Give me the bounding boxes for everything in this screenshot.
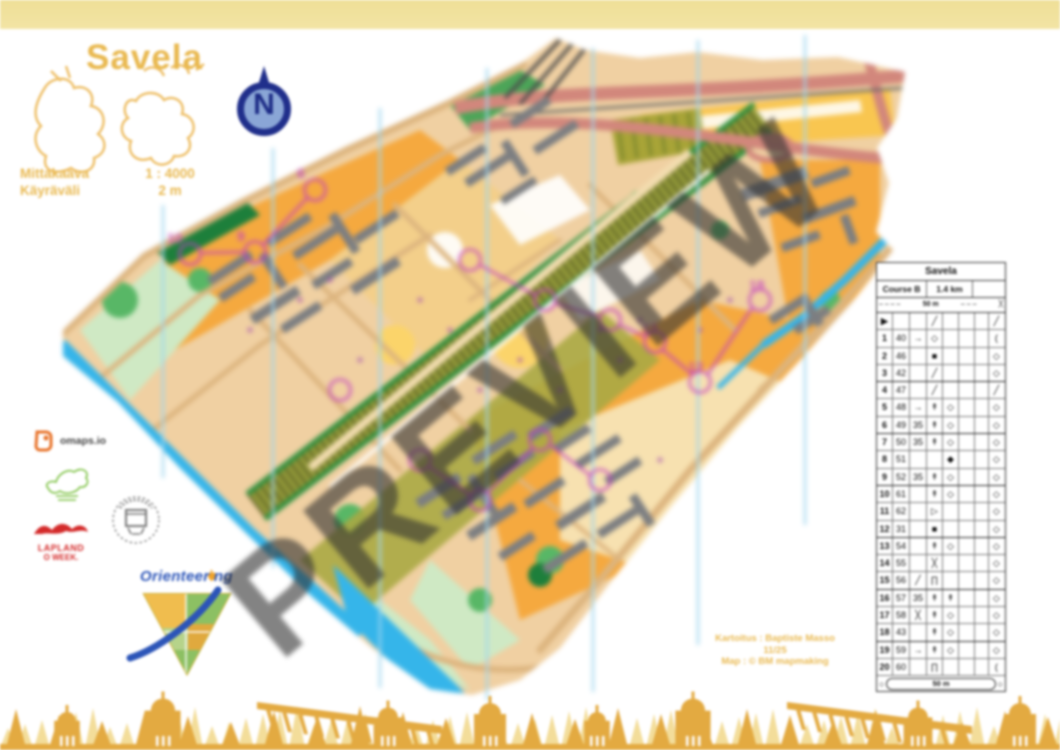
control-row: 1061↟◇◇ bbox=[877, 486, 1005, 503]
control-row: ▶╱╱ bbox=[877, 313, 1005, 330]
control-row: 140→◇( bbox=[877, 330, 1005, 347]
map-credits: Kartoitus : Baptiste Masso 11/25 Map : ©… bbox=[690, 633, 860, 668]
omaps-logo: omaps.io bbox=[34, 430, 106, 452]
info-symbol: ╳ bbox=[999, 298, 1003, 312]
omaps-label: omaps.io bbox=[60, 435, 106, 447]
north-letter: N bbox=[237, 88, 291, 122]
scale-value: 1 : 4000 bbox=[125, 165, 215, 182]
round-stamp-logo bbox=[110, 494, 162, 546]
course-climb bbox=[973, 281, 1005, 297]
control-row: 1959→↟◇◇ bbox=[877, 642, 1005, 659]
lapland-label-2: O WEEK. bbox=[30, 553, 92, 562]
info-dashes-left: – – – – bbox=[879, 298, 900, 312]
table-info-row: – – – – 50 m – – – ╳ bbox=[877, 298, 1005, 313]
control-row: 246■◇ bbox=[877, 348, 1005, 365]
control-row: 1455╳◇ bbox=[877, 555, 1005, 572]
svg-text:10: 10 bbox=[167, 230, 183, 246]
control-row: 1556╱∏◇ bbox=[877, 572, 1005, 589]
lapland-o-week-logo: LAPLAND O WEEK. bbox=[30, 520, 92, 562]
bottom-decorative-skyline bbox=[0, 686, 1060, 750]
control-row: 64935↟◇◇ bbox=[877, 417, 1005, 434]
contour-label: Käyräväli bbox=[20, 182, 125, 199]
lapland-label-1: LAPLAND bbox=[30, 543, 92, 553]
lapland-squiggle-icon bbox=[30, 520, 92, 538]
scale-block: Mittakaava 1 : 4000 Käyräväli 2 m bbox=[20, 165, 215, 199]
control-row: 1758╳↟◇◇ bbox=[877, 607, 1005, 624]
control-row: 548→↟◇◇ bbox=[877, 399, 1005, 416]
north-arrow-icon: N bbox=[237, 66, 299, 146]
control-row: 1162▷◇ bbox=[877, 503, 1005, 520]
svg-text:6: 6 bbox=[297, 165, 305, 181]
course-length: 1.4 km bbox=[927, 281, 973, 297]
preview-page: 6 9 10 12 13 18 Savela N Mittakaava 1 : … bbox=[0, 0, 1060, 750]
course-name: Course B bbox=[877, 281, 927, 297]
control-row: 2060∏( bbox=[877, 659, 1005, 676]
control-row: 851◆◇ bbox=[877, 451, 1005, 468]
info-distance: 50 m bbox=[923, 298, 939, 312]
control-row: 1354↟◇◇ bbox=[877, 538, 1005, 555]
credits-line-1: Kartoitus : Baptiste Masso bbox=[690, 633, 860, 645]
omaps-icon bbox=[34, 430, 54, 452]
table-title: Savela bbox=[877, 263, 1005, 281]
scale-label: Mittakaava bbox=[20, 165, 125, 182]
control-row: 1843↟◇◇ bbox=[877, 624, 1005, 641]
svg-text:9: 9 bbox=[237, 228, 245, 244]
credits-line-2: 11/25 bbox=[690, 645, 860, 657]
control-row: 75035↟◇◇ bbox=[877, 434, 1005, 451]
credits-line-3: Map : © BM mapmaking bbox=[690, 656, 860, 668]
green-outline-logo bbox=[42, 462, 92, 504]
control-rows: ▶╱╱ 140→◇( 246■◇ 342╱◇ 447╱╱ 548→↟◇◇ 649… bbox=[877, 313, 1005, 676]
control-row: 1231■◇ bbox=[877, 521, 1005, 538]
map-title: Savela bbox=[86, 38, 203, 78]
control-row: 95235↟◇◇ bbox=[877, 469, 1005, 486]
contour-value: 2 m bbox=[125, 182, 215, 199]
control-description-table: Savela Course B 1.4 km – – – – 50 m – – … bbox=[876, 262, 1006, 692]
control-row: 447╱╱ bbox=[877, 382, 1005, 399]
info-dashes-right: – – – bbox=[961, 298, 977, 312]
table-course-row: Course B 1.4 km bbox=[877, 281, 1005, 298]
control-row: 165735↟↟◇ bbox=[877, 590, 1005, 607]
control-row: 342╱◇ bbox=[877, 365, 1005, 382]
